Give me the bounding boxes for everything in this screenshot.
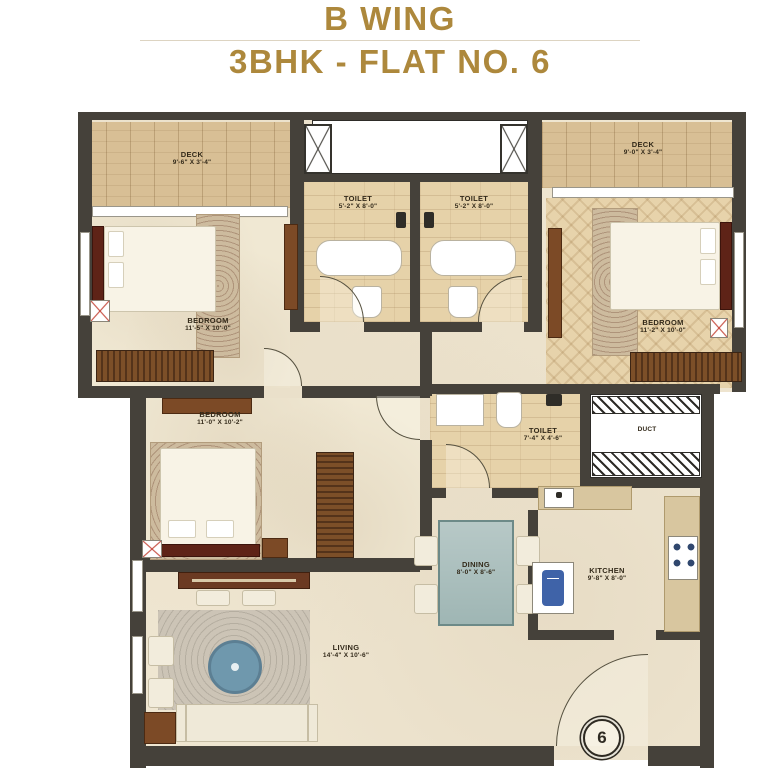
wall-segment (700, 388, 714, 768)
shower-fixture (424, 212, 434, 228)
window-bedroom-left (80, 232, 90, 316)
room-label-kitchen: KITCHEN 9'-8" X 8'-0" (564, 566, 650, 583)
wall-segment (410, 178, 420, 324)
wing-title: B WING (130, 0, 650, 38)
dining-chair (414, 536, 438, 566)
room-label-duct: DUCT (608, 426, 686, 434)
coffee-table-center (231, 663, 239, 671)
dining-chair (414, 584, 438, 614)
armchair (148, 678, 174, 708)
wall-segment (130, 558, 420, 572)
title-separator (140, 40, 640, 41)
room-name: DUCT (608, 426, 686, 434)
wardrobe (96, 350, 214, 382)
room-name: TOILET (426, 194, 522, 203)
room-dims: 14'-4" X 10'-6" (303, 652, 389, 660)
bed-headboard (156, 544, 260, 557)
entrance-flat-number: 6 (583, 719, 621, 757)
flat-title: 3BHK - FLAT NO. 6 (130, 43, 650, 81)
floor-plan-canvas: B WING 3BHK - FLAT NO. 6 (0, 0, 777, 768)
room-dims: 7'-4" X 4'-6" (498, 435, 588, 443)
room-name: LIVING (303, 643, 389, 652)
wall-segment (130, 746, 554, 766)
bench-seat (196, 590, 230, 606)
armchair (148, 636, 174, 666)
bench-seat (242, 590, 276, 606)
room-name: KITCHEN (564, 566, 650, 575)
bathtub (430, 240, 516, 276)
wall-segment (528, 118, 542, 332)
room-dims: 9'-0" X 3'-4" (583, 149, 703, 157)
duct-top-shaft (312, 120, 528, 174)
pillow (206, 520, 234, 538)
nightstand (262, 538, 288, 558)
room-dims: 9'-8" X 8'-0" (564, 575, 650, 583)
room-dims: 9'-6" X 3'-4" (132, 159, 252, 167)
wall-segment (524, 322, 542, 332)
room-label-toilet-common: TOILET 7'-4" X 4'-6" (498, 426, 588, 443)
room-dims: 8'-0" X 8'-6" (436, 569, 516, 577)
room-name: DECK (583, 140, 703, 149)
wall-segment (420, 384, 720, 394)
outside-left-strip (78, 398, 130, 760)
plan-title: B WING 3BHK - FLAT NO. 6 (130, 0, 650, 81)
tv-console (178, 572, 310, 589)
washbasin-counter (436, 394, 484, 426)
ac-unit-marker (90, 300, 110, 322)
duct-hatch-bottom (592, 452, 700, 476)
pillow (700, 259, 716, 285)
pillow (168, 520, 196, 538)
room-dims: 11'-2" X 10'-0" (608, 327, 718, 335)
window-living-1 (132, 560, 143, 612)
room-dims: 11'-0" X 10'-2" (165, 419, 275, 427)
wardrobe (630, 352, 742, 382)
room-label-bedroom-left: BEDROOM 11'-5" X 10'-0" (153, 316, 263, 333)
window-living-2 (132, 636, 143, 694)
toilet-wc (496, 392, 522, 428)
wall-segment (304, 174, 528, 182)
bed-headboard (720, 222, 732, 310)
room-name: BEDROOM (165, 410, 275, 419)
window-deck-right (552, 187, 734, 198)
room-name: DECK (132, 150, 252, 159)
pillow (108, 262, 124, 288)
room-dims: 5'-2" X 8'-0" (426, 203, 522, 211)
sofa-armrest (176, 704, 186, 742)
room-label-toilet-right: TOILET 5'-2" X 8'-0" (426, 194, 522, 211)
room-name: BEDROOM (153, 316, 263, 325)
toilet-wc (448, 286, 478, 318)
hob-burners (668, 536, 698, 580)
wall-segment (290, 322, 320, 332)
pillow (108, 231, 124, 257)
room-name: TOILET (310, 194, 406, 203)
room-dims: 11'-5" X 10'-0" (153, 325, 263, 333)
dresser (284, 224, 298, 310)
room-label-bedroom-mid: BEDROOM 11'-0" X 10'-2" (165, 410, 275, 427)
kitchen-sink (544, 488, 574, 508)
ac-unit-marker (142, 540, 162, 558)
wall-segment (430, 488, 446, 498)
sofa (186, 704, 308, 742)
shower-fixture (546, 394, 562, 406)
fridge-icon (542, 570, 564, 606)
flat-number-text: 6 (597, 728, 606, 748)
wall-segment (648, 746, 714, 766)
wall-segment (78, 386, 264, 398)
room-label-dining: DINING 8'-0" X 8'-6" (436, 560, 516, 577)
window-bedroom-right (734, 232, 744, 328)
room-label-deck-right: DECK 9'-0" X 3'-4" (583, 140, 703, 157)
wardrobe (316, 452, 354, 558)
room-label-deck-left: DECK 9'-6" X 3'-4" (132, 150, 252, 167)
room-name: DINING (436, 560, 516, 569)
column-x-left (304, 124, 332, 174)
room-dims: 5'-2" X 8'-0" (310, 203, 406, 211)
outside-right-strip (714, 392, 746, 760)
column-x-right (500, 124, 528, 174)
wall-segment (528, 630, 614, 640)
room-name: BEDROOM (608, 318, 718, 327)
pillow (700, 228, 716, 254)
shower-fixture (396, 212, 406, 228)
dresser (548, 228, 562, 338)
room-label-bedroom-right: BEDROOM 11'-2" X 10'-0" (608, 318, 718, 335)
room-label-living: LIVING 14'-4" X 10'-6" (303, 643, 389, 660)
room-name: TOILET (498, 426, 588, 435)
bathtub (316, 240, 402, 276)
sink-tap (556, 492, 562, 498)
window-deck-left (92, 206, 288, 217)
room-label-toilet-left: TOILET 5'-2" X 8'-0" (310, 194, 406, 211)
sofa-armrest (308, 704, 318, 742)
side-table (144, 712, 176, 744)
duct-hatch-top (592, 396, 700, 414)
